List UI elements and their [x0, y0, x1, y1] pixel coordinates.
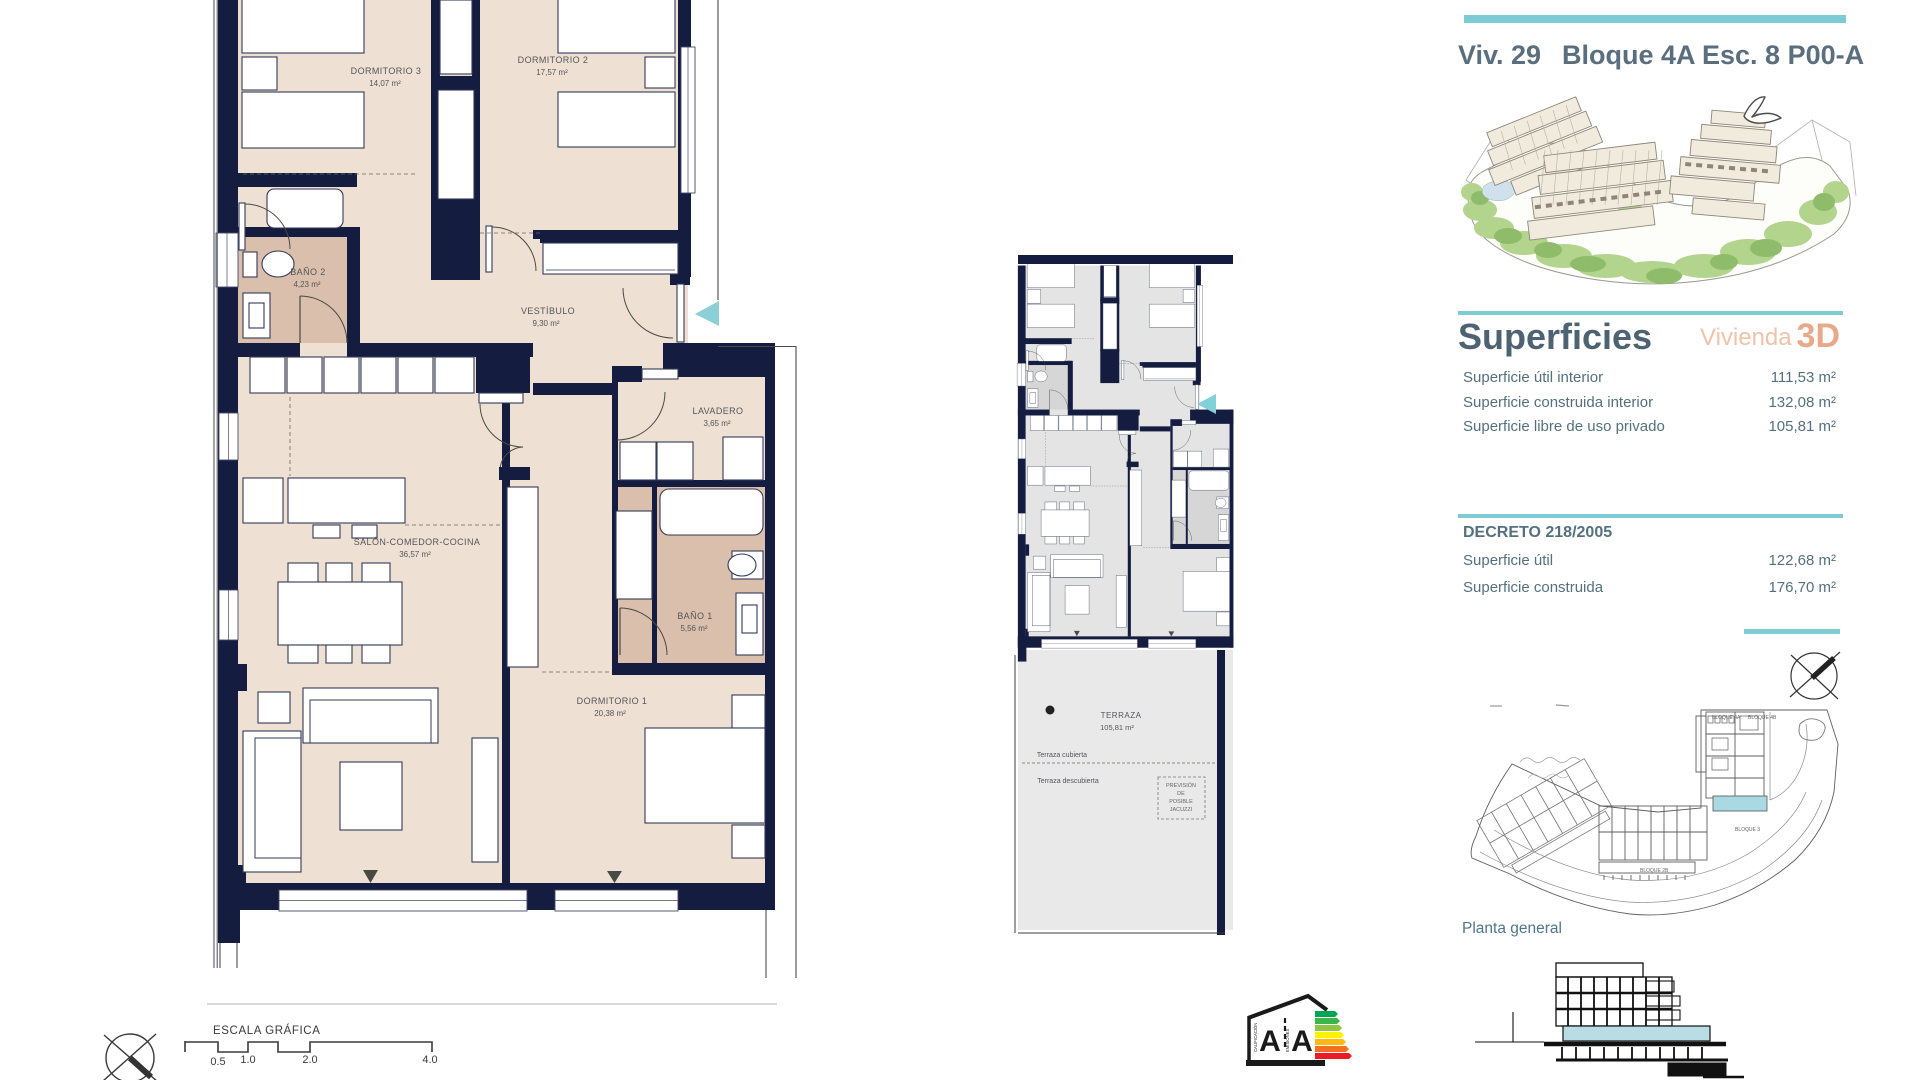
svg-text:Vivienda: Vivienda — [1700, 324, 1792, 351]
svg-text:LAVADERO: LAVADERO — [693, 406, 744, 416]
svg-text:JACUZZI: JACUZZI — [1170, 807, 1193, 813]
svg-text:Superficie libre de uso privad: Superficie libre de uso privado — [1463, 418, 1665, 435]
svg-text:BLOQUE 3: BLOQUE 3 — [1735, 827, 1760, 833]
svg-text:5,56 m²: 5,56 m² — [680, 624, 707, 633]
svg-text:14,07 m²: 14,07 m² — [369, 79, 401, 88]
svg-text:BAÑO 2: BAÑO 2 — [290, 267, 325, 277]
svg-text:132,08 m²: 132,08 m² — [1768, 394, 1836, 411]
svg-text:A: A — [1259, 1025, 1281, 1058]
svg-text:20,38 m²: 20,38 m² — [594, 709, 626, 718]
svg-text:BAÑO 1: BAÑO 1 — [677, 611, 712, 621]
svg-text:122,68 m²: 122,68 m² — [1768, 552, 1836, 569]
svg-text:Terraza descubierta: Terraza descubierta — [1037, 778, 1099, 785]
svg-text:BLOQUE 4A: BLOQUE 4A — [1712, 715, 1741, 721]
svg-text:PREVISIÓN: PREVISIÓN — [1166, 782, 1196, 789]
svg-text:Superficie útil interior: Superficie útil interior — [1463, 369, 1603, 386]
svg-text:DORMITORIO 3: DORMITORIO 3 — [351, 66, 422, 76]
svg-text:Viv. 29: Viv. 29 — [1458, 40, 1541, 70]
svg-text:SALÓN-COMEDOR-COCINA: SALÓN-COMEDOR-COCINA — [354, 537, 481, 547]
svg-text:Superficie construida interior: Superficie construida interior — [1463, 394, 1653, 411]
svg-text:0.5: 0.5 — [210, 1056, 225, 1068]
svg-text:DORMITORIO 2: DORMITORIO 2 — [518, 55, 589, 65]
svg-text:105,81 m²: 105,81 m² — [1100, 723, 1134, 732]
svg-text:1.0: 1.0 — [240, 1054, 255, 1066]
svg-text:3D: 3D — [1797, 317, 1840, 355]
svg-text:POSIBLE: POSIBLE — [1169, 799, 1193, 805]
svg-text:Bloque 4A Esc. 8 P00-A: Bloque 4A Esc. 8 P00-A — [1562, 40, 1864, 70]
svg-text:BLOQUE 4B: BLOQUE 4B — [1748, 715, 1777, 721]
svg-text:TERRAZA: TERRAZA — [1101, 711, 1142, 720]
svg-text:A: A — [1291, 1025, 1313, 1058]
svg-text:CALIFICACIÓN: CALIFICACIÓN — [1253, 1023, 1258, 1052]
svg-text:9,30 m²: 9,30 m² — [532, 319, 559, 328]
svg-text:ESCALA GRÁFICA: ESCALA GRÁFICA — [213, 1024, 320, 1037]
svg-text:EMISIONES: EMISIONES — [1285, 1029, 1290, 1052]
svg-text:4.0: 4.0 — [422, 1054, 437, 1066]
svg-text:DECRETO 218/2005: DECRETO 218/2005 — [1463, 524, 1612, 541]
svg-text:Superficie construida: Superficie construida — [1463, 579, 1604, 596]
svg-text:DORMITORIO 1: DORMITORIO 1 — [577, 696, 648, 706]
svg-text:Superficie útil: Superficie útil — [1463, 552, 1553, 569]
svg-text:BLOQUE 2B: BLOQUE 2B — [1640, 868, 1669, 874]
svg-text:VESTÍBULO: VESTÍBULO — [521, 306, 575, 316]
svg-text:105,81 m²: 105,81 m² — [1768, 418, 1836, 435]
svg-text:36,57 m²: 36,57 m² — [399, 550, 431, 559]
svg-text:Superficies: Superficies — [1458, 316, 1652, 357]
svg-text:17,57 m²: 17,57 m² — [536, 68, 568, 77]
svg-text:Planta general: Planta general — [1462, 920, 1562, 937]
svg-text:176,70 m²: 176,70 m² — [1768, 579, 1836, 596]
svg-text:2.0: 2.0 — [302, 1054, 317, 1066]
svg-text:4,23 m²: 4,23 m² — [293, 280, 320, 289]
svg-text:111,53 m²: 111,53 m² — [1771, 369, 1836, 386]
svg-text:Terraza cubierta: Terraza cubierta — [1037, 752, 1087, 759]
svg-text:3,65 m²: 3,65 m² — [703, 419, 730, 428]
svg-text:DE: DE — [1177, 791, 1185, 797]
